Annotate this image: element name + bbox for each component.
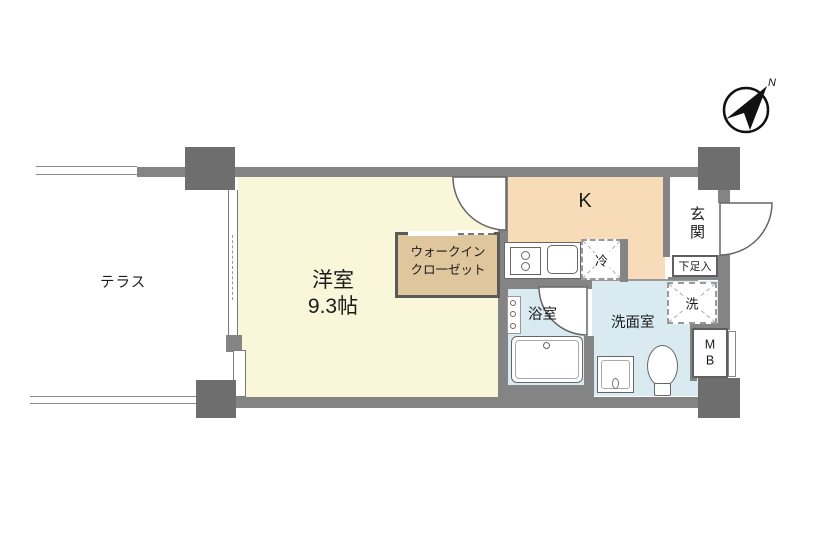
kitchen-label: K (570, 190, 600, 213)
bathtub (511, 336, 583, 383)
terrace-bottom-rail (30, 396, 196, 404)
closet-opening (408, 231, 458, 236)
pillar-bottom-left (196, 380, 236, 418)
washroom-label: 洗面室 (611, 311, 655, 332)
kitchen-entrance-wall (663, 167, 670, 257)
washbasin (597, 356, 634, 393)
right-wall-mid (718, 255, 730, 330)
room-door (448, 175, 510, 235)
meter-box-label-m: M (705, 337, 715, 353)
toilet-bowl (647, 345, 678, 387)
meter-box-label-b: B (705, 353, 715, 369)
closet-label: ウォークイン クロ一ゼット (398, 243, 498, 279)
refrigerator-label: 冷 (594, 250, 609, 269)
closet-folding-door (458, 230, 494, 235)
meter-box-door (728, 331, 736, 377)
pillar-top-right (698, 147, 740, 190)
bottom-wall (235, 397, 740, 408)
meter-box: M B (692, 328, 728, 378)
terrace-window-mullion (232, 235, 233, 300)
shower-knob-2 (510, 311, 516, 317)
washer-label: 洗 (684, 294, 699, 313)
bathtub-drain (543, 342, 550, 349)
closet-label-line1: ウォークイン (398, 243, 498, 261)
kitchen-sink (547, 245, 578, 274)
terrace-label: テラス (100, 271, 146, 292)
stove-burner-1 (521, 251, 530, 260)
pillar-top-left (185, 147, 235, 190)
refrigerator-space: 冷 (581, 239, 622, 280)
meter-box-label: M B (705, 337, 715, 368)
terrace-top-rail (36, 166, 137, 175)
washer-space: 洗 (667, 282, 717, 324)
shower-knob-3 (510, 323, 516, 329)
washbasin-faucet (612, 378, 619, 389)
compass: N (715, 72, 795, 142)
shoe-cabinet: 下足入 (672, 255, 718, 277)
refrigerator-side-wall (620, 239, 628, 282)
bath-washroom-wall (584, 336, 594, 396)
closet-label-line2: クロ一ゼット (398, 261, 498, 279)
shoe-cabinet-label: 下足入 (679, 258, 712, 274)
terrace-window (228, 190, 238, 336)
shoe-cabinet-underline (668, 277, 718, 280)
floor-plan: ウォークイン クロ一ゼット 冷 玄関 下足入 洗 M B (0, 0, 821, 533)
entrance-door (716, 201, 776, 259)
stove-burner-2 (521, 262, 530, 271)
bathroom-label: 浴室 (528, 303, 557, 324)
bath-bottom-wall (498, 385, 594, 399)
pillar-bottom-right (698, 378, 740, 418)
living-room-size: 9.3帖 (283, 290, 383, 320)
entrance-label: 玄関 (686, 206, 707, 242)
shower-knob-1 (510, 300, 516, 306)
compass-north-label: N (768, 77, 776, 89)
toilet-base (654, 383, 671, 396)
